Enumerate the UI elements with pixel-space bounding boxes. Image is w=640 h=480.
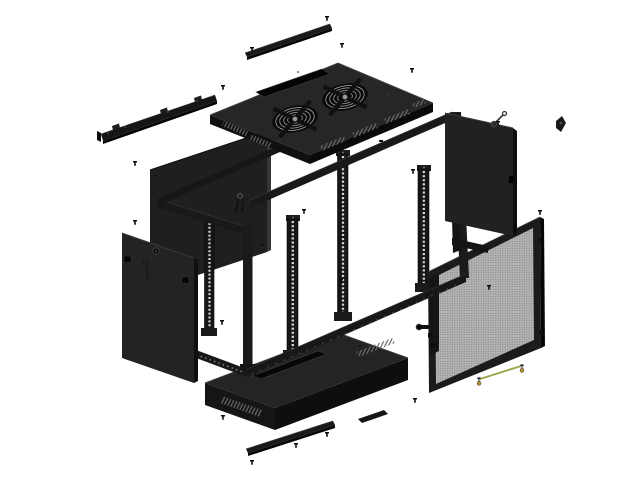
left-panel-face	[122, 233, 194, 383]
screw-icon	[325, 16, 329, 21]
screw-icon	[294, 443, 298, 448]
rack-rail-3	[334, 150, 352, 321]
screw-icon	[250, 460, 254, 465]
screw-icon	[413, 398, 417, 403]
bracket-end-tab	[97, 131, 101, 142]
screw-icon	[133, 220, 137, 225]
screw-icon	[221, 415, 225, 420]
latch-block	[431, 343, 437, 348]
screw-icon	[325, 432, 329, 437]
exploded-view-canvas	[0, 0, 640, 480]
product-image: Exploded view of a wall-mount 19-inch ne…	[0, 0, 640, 480]
left-panel-edge	[194, 258, 198, 383]
frame-slot-hole	[379, 140, 383, 142]
wire-terminal	[477, 377, 481, 385]
screw-icon	[220, 320, 224, 325]
screw-icon	[302, 209, 306, 214]
screw-icon	[340, 43, 344, 48]
tray-tab	[358, 410, 388, 423]
latch-block	[428, 333, 433, 338]
screw-icon	[410, 68, 414, 73]
rack-rail-2	[283, 215, 303, 359]
right-panel-edge	[513, 128, 517, 236]
right-side-panel	[445, 112, 517, 237]
bottom-cover-strip	[246, 421, 335, 456]
hinge-tab	[539, 330, 543, 335]
screw-icon	[133, 161, 137, 166]
frame-front-left-post	[243, 225, 253, 372]
left-side-panel	[122, 233, 198, 383]
right-panel-face	[445, 113, 513, 236]
screw-icon	[221, 85, 225, 90]
screw-icon	[538, 210, 542, 215]
mesh-front-door	[416, 217, 545, 393]
screw-icon	[411, 169, 415, 174]
hinge-tab	[538, 238, 542, 243]
right-panel-latch	[556, 116, 566, 132]
latch-cutout	[509, 176, 513, 183]
rail-foot	[334, 312, 352, 321]
top-cover-strip	[245, 24, 332, 60]
rail-foot	[201, 328, 217, 336]
wire-terminal	[520, 364, 524, 372]
handle-cutout	[124, 256, 131, 263]
key-icon	[496, 115, 503, 122]
cam-lock-icon	[491, 121, 497, 127]
handle-cutout	[182, 277, 189, 284]
wall-mount-bracket	[97, 95, 217, 144]
